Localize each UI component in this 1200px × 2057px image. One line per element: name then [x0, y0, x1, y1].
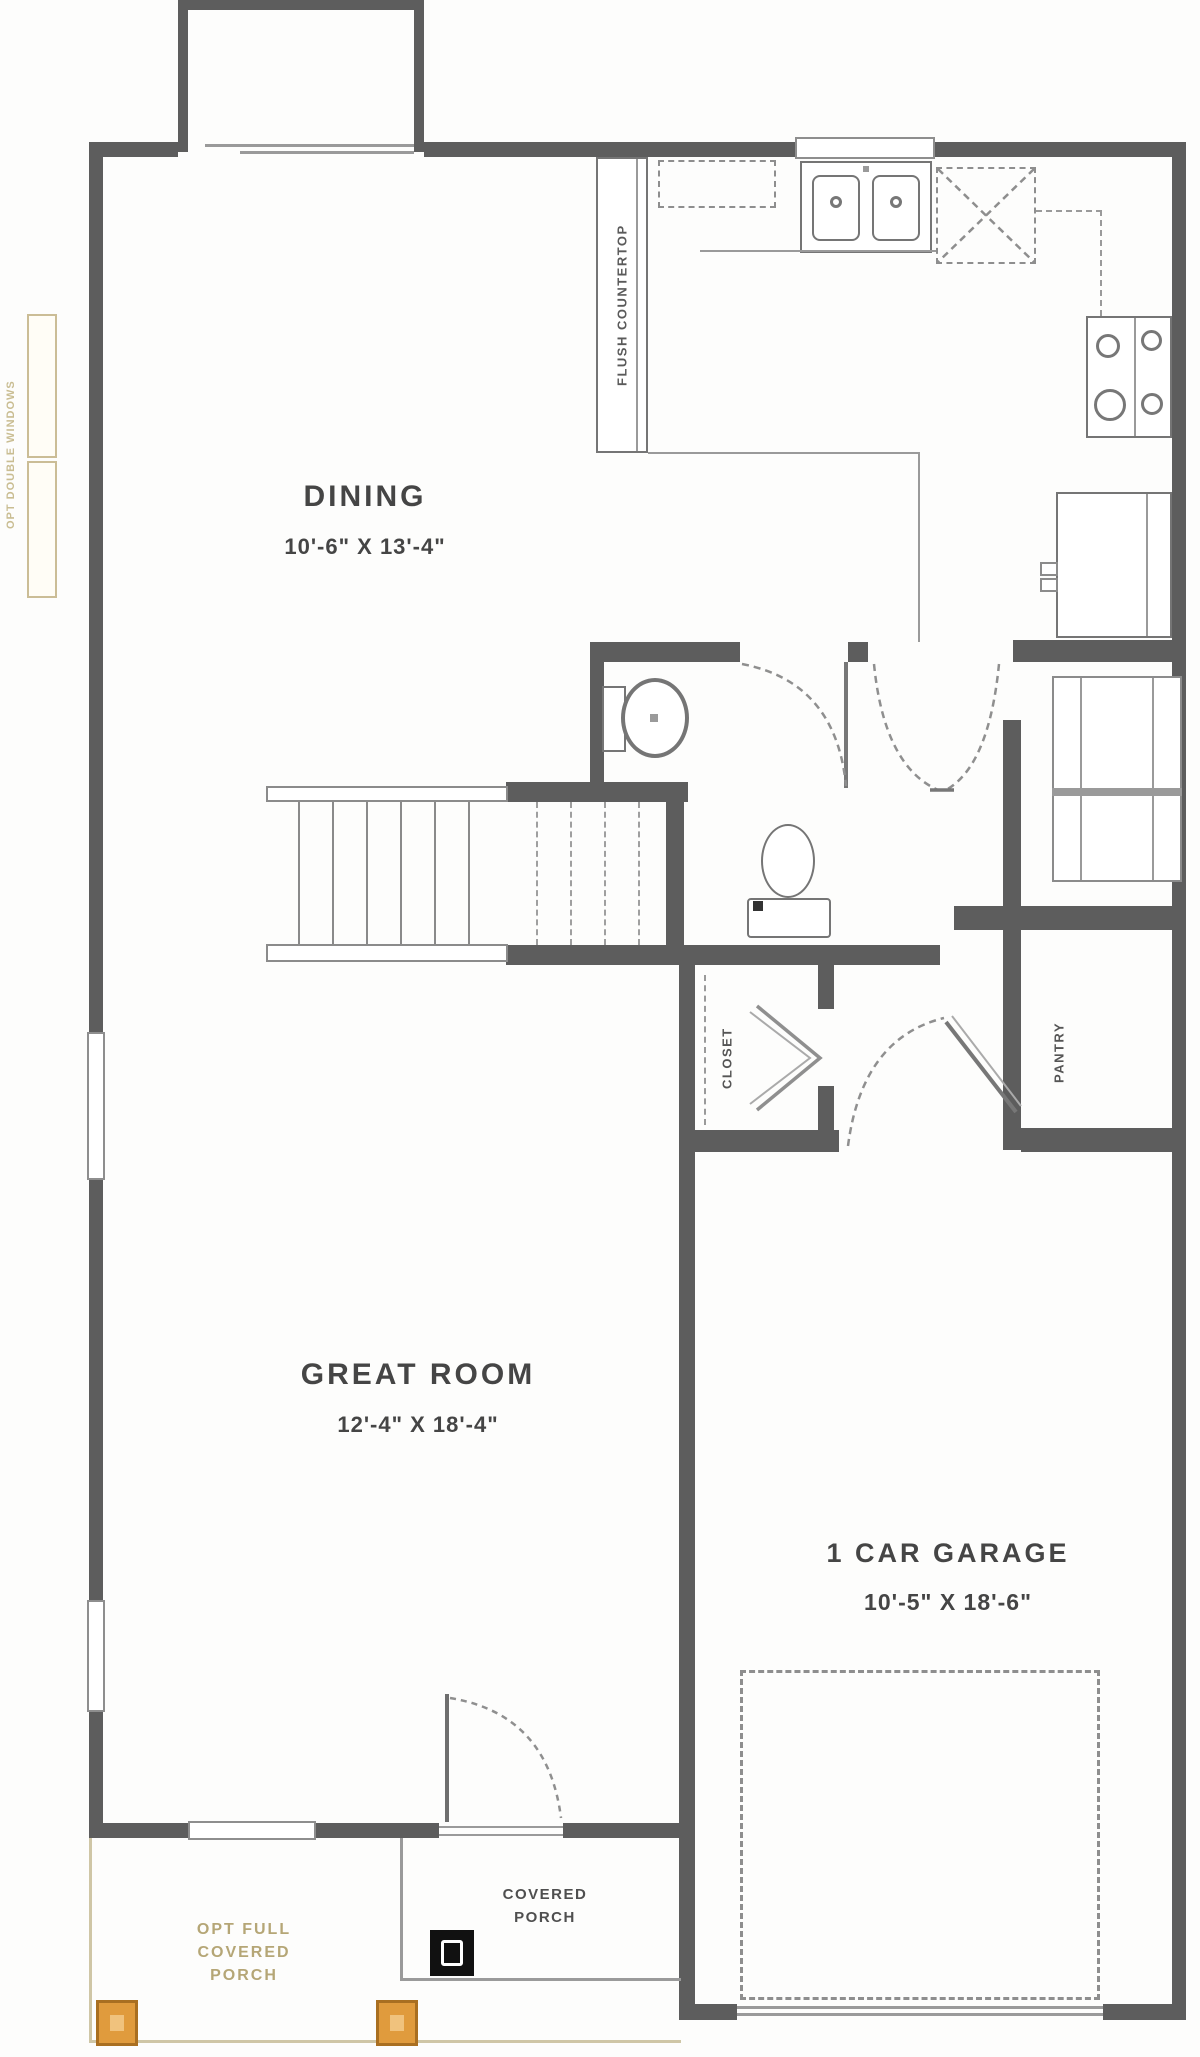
stair-tread — [332, 802, 334, 944]
opt-porch-outline-left — [89, 1838, 92, 2043]
wall-pantry-bottom — [1021, 1128, 1172, 1152]
porch-post-black — [430, 1930, 474, 1976]
stair-rail-bottom — [266, 944, 508, 962]
stove-burner-2 — [1141, 330, 1162, 351]
toilet-bowl — [761, 824, 815, 898]
refrigerator-handle-1 — [1040, 562, 1058, 576]
stair-tread-upper — [638, 802, 640, 945]
stair-tread-upper — [536, 802, 538, 945]
floor-plan: FLUSH COUNTERTOP — [0, 0, 1200, 2057]
wall-garage-bottom-b — [1103, 2004, 1186, 2020]
stove-burner-1 — [1096, 334, 1120, 358]
stair-rail-top — [266, 786, 508, 802]
bay-wall-left — [178, 0, 188, 152]
french-door-arc-right — [946, 664, 999, 790]
great-room-label: GREAT ROOM 12'-4" X 18'-4" — [301, 1340, 535, 1456]
wall-right — [1172, 142, 1186, 2020]
great-room-dims: 12'-4" X 18'-4" — [301, 1412, 535, 1438]
stair-tread — [366, 802, 368, 944]
corner-cabinet-marker — [936, 167, 1036, 264]
dishwasher — [658, 160, 776, 208]
garage-door-line-2 — [737, 2013, 1103, 2016]
covered-porch-label: COVERED PORCH — [503, 1884, 588, 1929]
bay-wall-top — [178, 0, 424, 10]
porch-post-orange-1-inner — [110, 2015, 124, 2031]
porch-post-orange-2-inner — [390, 2015, 404, 2031]
flush-countertop-label: FLUSH COUNTERTOP — [602, 170, 642, 440]
front-door-threshold-2 — [439, 1834, 563, 1836]
dining-name: DINING — [284, 480, 445, 514]
upper-cabinet-dash-v — [1100, 210, 1102, 316]
wall-powder-top-stub — [848, 642, 868, 662]
great-room-window-front — [188, 1821, 316, 1840]
faucet-left — [830, 196, 842, 208]
wall-pantry-top — [954, 906, 1172, 930]
shelf-unit-line-1 — [1080, 678, 1082, 880]
refrigerator — [1056, 492, 1172, 638]
wall-powder-top — [590, 642, 740, 662]
wall-pantry-left — [1003, 720, 1021, 1150]
porch-post-orange-1 — [96, 2000, 138, 2046]
wall-powder-jog — [506, 782, 688, 802]
opt-double-window-2 — [27, 461, 57, 598]
wall-garage-left — [679, 965, 695, 2020]
faucet-right — [890, 196, 902, 208]
wall-powder-inner — [666, 800, 684, 948]
bay-sill-line-1 — [205, 144, 414, 147]
front-door-threshold-1 — [439, 1826, 563, 1828]
upper-cabinet-dash-h — [1036, 210, 1102, 212]
porch-divider — [400, 1838, 403, 1980]
wall-closet-right-stub-top — [818, 965, 834, 1009]
stair-tread — [434, 802, 436, 944]
closet-label: CLOSET — [712, 1008, 742, 1108]
counter-edge-line — [700, 250, 936, 252]
wall-top-right — [935, 142, 1186, 157]
front-door-arc — [450, 1698, 561, 1818]
stove-divider — [1134, 318, 1136, 436]
stair-tread-upper — [604, 802, 606, 945]
wall-closet-bottom — [679, 1130, 839, 1152]
bay-sill-line-2 — [240, 151, 414, 154]
kitchen-sink-window — [795, 137, 935, 159]
dining-dims: 10'-6" X 13'-4" — [284, 534, 445, 560]
stair-tread — [468, 802, 470, 944]
shelf-unit — [1052, 676, 1182, 882]
refrigerator-handle-2 — [1040, 578, 1058, 592]
stair-tread-upper — [570, 802, 572, 945]
wall-top-mid — [424, 142, 795, 157]
wall-garage-bottom-a — [679, 2004, 737, 2020]
kitchen-sink-bowl-left — [812, 175, 860, 241]
stove-burner-3 — [1094, 389, 1126, 421]
porch-edge — [400, 1978, 681, 1981]
stair-tread — [298, 802, 300, 944]
closet-bifold-inner — [750, 1012, 810, 1104]
great-room-window-left-1 — [87, 1032, 105, 1180]
wall-fridge-nook — [1013, 640, 1186, 662]
porch-post-black-inner — [441, 1940, 463, 1966]
faucet-center — [863, 166, 869, 172]
refrigerator-door-line — [1146, 494, 1148, 636]
bay-wall-right — [414, 0, 424, 152]
great-room-name: GREAT ROOM — [301, 1358, 535, 1392]
closet-shelf-dash — [704, 975, 706, 1125]
garage-door-line-1 — [737, 2006, 1103, 2009]
porch-post-orange-2 — [376, 2000, 418, 2046]
pantry-label: PANTRY — [1044, 1000, 1074, 1106]
wall-bottom-great-room-b — [563, 1823, 693, 1838]
powder-sink-faucet — [650, 714, 658, 722]
opt-double-window-1 — [27, 314, 57, 458]
kitchen-sink-bowl-right — [872, 175, 920, 241]
kitchen-floor-line-h — [648, 452, 918, 454]
french-door-arc-left — [874, 664, 938, 790]
closet-bifold-outer — [757, 1006, 820, 1110]
wall-left — [89, 142, 103, 1838]
garage-door-dashed-area — [740, 1670, 1100, 2000]
stove-burner-4 — [1141, 393, 1163, 415]
garage-entry-arc — [848, 1018, 944, 1146]
powder-door-arc — [742, 664, 846, 786]
dining-label: DINING 10'-6" X 13'-4" — [284, 462, 445, 578]
garage-label: 1 CAR GARAGE 10'-5" X 18'-6" — [826, 1520, 1069, 1634]
kitchen-floor-line-v — [918, 452, 920, 642]
garage-name: 1 CAR GARAGE — [826, 1538, 1069, 1569]
wall-closet-right-stub-bottom — [818, 1086, 834, 1130]
stair-tread — [400, 802, 402, 944]
shelf-unit-band — [1052, 788, 1182, 796]
opt-double-windows-label: OPT DOUBLE WINDOWS — [0, 330, 24, 580]
garage-dims: 10'-5" X 18'-6" — [826, 1589, 1069, 1616]
opt-porch-label: OPT FULL COVERED PORCH — [197, 1918, 291, 1988]
great-room-window-left-2 — [87, 1600, 105, 1712]
wall-hall-top — [506, 945, 940, 965]
toilet-tank-mark — [753, 901, 763, 911]
shelf-unit-line-2 — [1152, 678, 1154, 880]
